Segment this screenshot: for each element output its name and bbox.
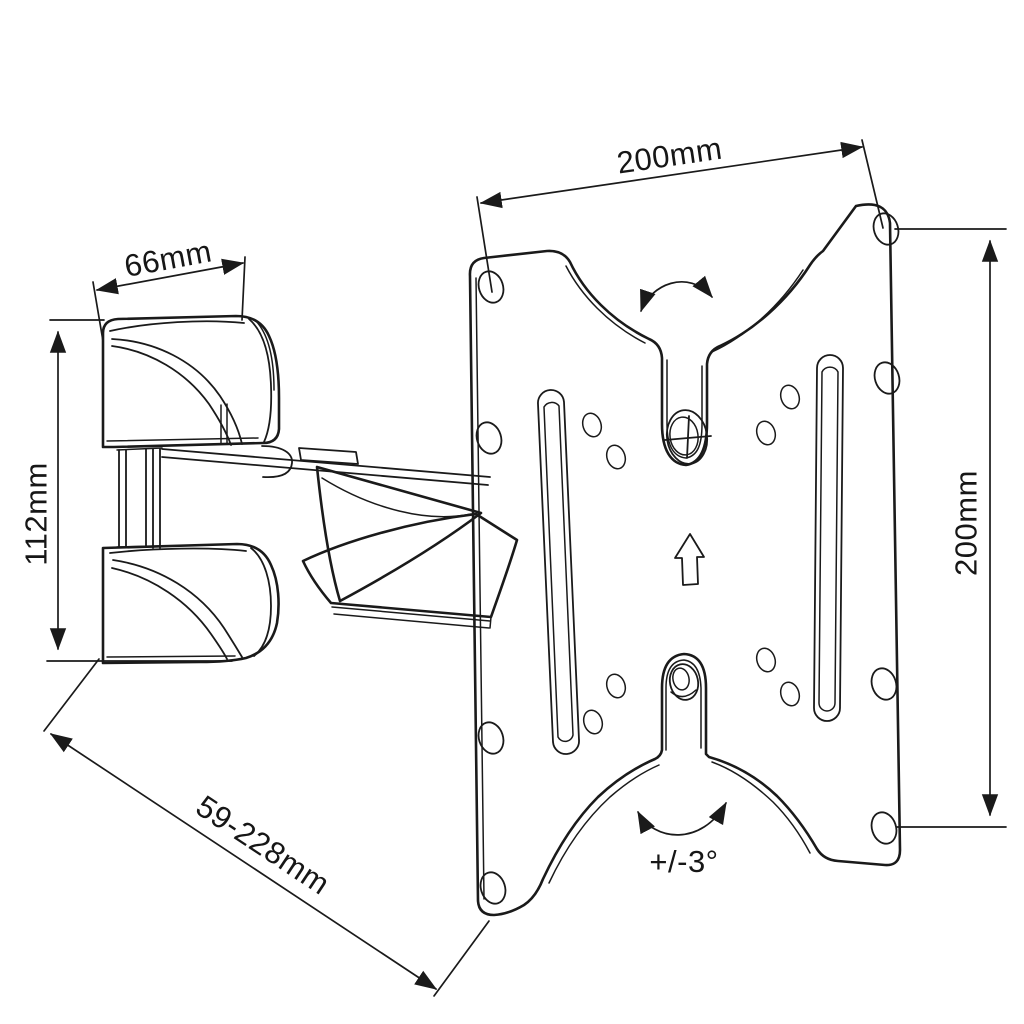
dim-label-plate-height: 200mm bbox=[949, 470, 984, 576]
mounting-hole bbox=[871, 359, 904, 397]
dim-label-extension-range: 59-228mm bbox=[190, 788, 336, 901]
bracket-corner-curve bbox=[112, 568, 227, 659]
dim-plate-height: 200mm bbox=[895, 229, 1006, 827]
hinge-pin bbox=[117, 448, 162, 548]
tilt-annotation: +/-3° bbox=[638, 803, 726, 879]
bracket-side-curve bbox=[251, 548, 271, 656]
drawing-canvas: 200mm 66mm 112mm 200mm 59-228mm bbox=[0, 0, 1024, 1024]
plate-edge-lines bbox=[476, 266, 810, 899]
adapter-hole bbox=[754, 646, 779, 674]
mounting-hole bbox=[868, 809, 901, 847]
extension-line bbox=[862, 140, 883, 228]
mounting-holes bbox=[473, 210, 904, 907]
adapter-hole bbox=[604, 443, 629, 471]
mounting-hole bbox=[868, 665, 901, 703]
bracket-bottom-block bbox=[103, 544, 279, 663]
dim-label-bracket-height: 112mm bbox=[19, 462, 54, 566]
bracket-top-edge-line bbox=[110, 549, 246, 553]
extension-line bbox=[93, 282, 103, 341]
mounting-hole bbox=[475, 719, 508, 757]
vesa-plate bbox=[470, 204, 903, 915]
extension-line bbox=[434, 921, 489, 996]
arm-gusset bbox=[317, 467, 481, 601]
dim-plate-width: 200mm bbox=[477, 131, 883, 292]
plate-outline bbox=[470, 204, 900, 915]
bracket-side-curve bbox=[249, 319, 271, 442]
extension-arm bbox=[162, 448, 517, 628]
bracket-bottom-inner-line bbox=[107, 656, 235, 657]
slot-left bbox=[538, 390, 579, 754]
rotation-arrow-bottom-icon bbox=[638, 803, 726, 835]
mounting-hole bbox=[477, 869, 510, 907]
tilt-range-label: +/-3° bbox=[649, 844, 718, 879]
adapter-holes bbox=[580, 383, 803, 736]
dim-bracket-width: 66mm bbox=[93, 233, 245, 341]
arm-slab bbox=[303, 514, 517, 617]
adapter-hole bbox=[778, 383, 803, 411]
extension-line bbox=[44, 659, 99, 731]
dimension-annotations: 200mm 66mm 112mm 200mm 59-228mm bbox=[19, 131, 1007, 996]
wall-mount-technical-drawing: 200mm 66mm 112mm 200mm 59-228mm bbox=[0, 0, 1024, 1024]
dim-extension-range: 59-228mm bbox=[44, 659, 489, 996]
extension-line bbox=[242, 257, 245, 320]
dim-label-bracket-width: 66mm bbox=[122, 233, 215, 283]
up-arrow-icon bbox=[675, 534, 704, 585]
hinge-knuckle bbox=[262, 446, 292, 477]
adapter-hole bbox=[754, 419, 779, 447]
adapter-hole bbox=[580, 411, 605, 439]
bracket-bottom-inner-line bbox=[107, 438, 258, 441]
bracket-corner-curve bbox=[112, 346, 231, 445]
adapter-hole bbox=[778, 680, 803, 708]
bracket-top-block bbox=[103, 316, 279, 447]
arm-gusset-fold bbox=[322, 478, 471, 517]
slot-right bbox=[814, 355, 843, 721]
adapter-hole bbox=[604, 672, 629, 700]
bracket-top-edge-line bbox=[110, 321, 244, 331]
rotation-arrow-top-icon bbox=[641, 282, 712, 311]
dim-label-plate-width: 200mm bbox=[615, 131, 725, 181]
wall-bracket bbox=[103, 316, 292, 663]
dimension-line bbox=[51, 734, 436, 989]
adapter-hole bbox=[581, 708, 606, 736]
